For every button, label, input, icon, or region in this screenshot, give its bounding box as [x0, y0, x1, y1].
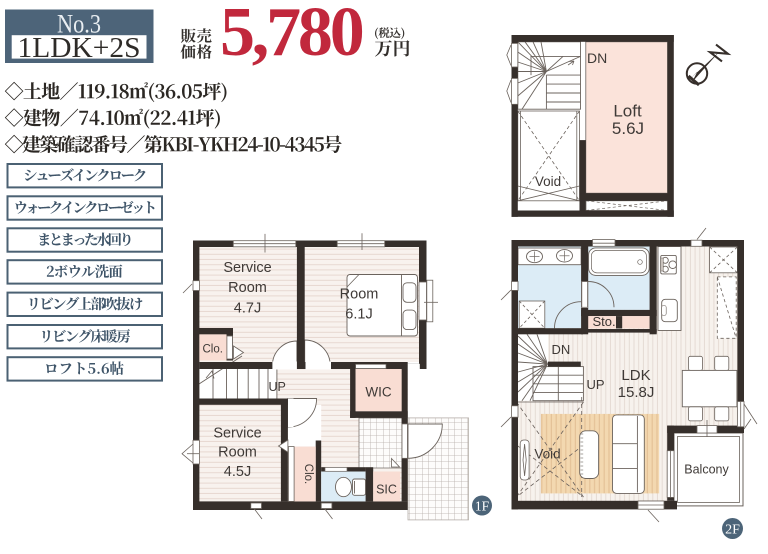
svg-text:Service: Service — [223, 260, 271, 276]
svg-text:5,780: 5,780 — [220, 0, 363, 71]
svg-text:6.1J: 6.1J — [345, 307, 372, 323]
svg-text:Service: Service — [213, 425, 261, 441]
svg-text:SIC: SIC — [376, 482, 397, 496]
svg-text:Room: Room — [218, 445, 257, 461]
svg-text:Balcony: Balcony — [684, 462, 729, 476]
svg-text:Void: Void — [535, 174, 561, 189]
svg-text:Void: Void — [534, 446, 560, 461]
svg-text:UP: UP — [269, 380, 286, 394]
svg-text:4.5J: 4.5J — [224, 464, 251, 480]
svg-text:Clo.: Clo. — [202, 343, 222, 355]
svg-text:2F: 2F — [725, 523, 740, 538]
svg-text:Room: Room — [228, 280, 267, 296]
svg-text:4.7J: 4.7J — [234, 301, 261, 317]
svg-text:Room: Room — [340, 287, 379, 303]
svg-text:DN: DN — [552, 342, 571, 357]
svg-text:Clo.: Clo. — [302, 464, 314, 484]
svg-text:5.6J: 5.6J — [612, 119, 644, 138]
svg-text:1LDK+2S: 1LDK+2S — [18, 32, 141, 64]
svg-text:Loft: Loft — [613, 102, 642, 121]
svg-text:Sto.: Sto. — [593, 314, 616, 329]
svg-text:WIC: WIC — [365, 385, 391, 400]
svg-text:15.8J: 15.8J — [618, 384, 655, 401]
svg-text:LDK: LDK — [621, 367, 650, 384]
svg-text:1F: 1F — [475, 498, 490, 513]
svg-text:DN: DN — [587, 50, 607, 66]
svg-text:UP: UP — [587, 377, 605, 392]
